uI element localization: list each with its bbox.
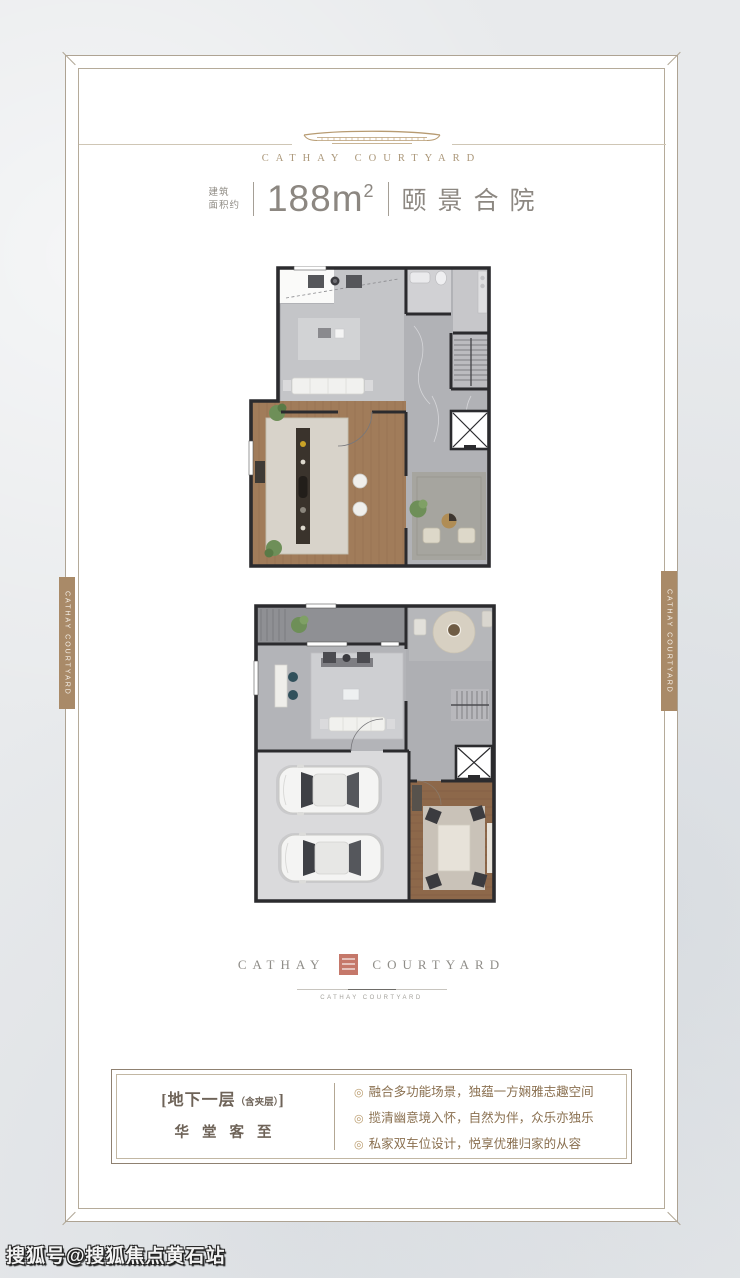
elevator-icon (456, 746, 492, 779)
side-table (320, 719, 328, 729)
poster-card: CATHAY COURTYARD 建筑 面积约 188m2 颐景合院 (65, 55, 678, 1222)
side-table (387, 719, 395, 729)
coffee-table (318, 328, 331, 338)
logo-divider (297, 989, 447, 990)
side-table (283, 380, 291, 391)
armchair (482, 611, 492, 627)
feature-bullet: ◎融合多功能场景，独蕴一方娴雅志趣空间 (354, 1080, 594, 1106)
side-ribbon-left: CATHAY COURTYARD (59, 577, 75, 709)
armchair (423, 528, 440, 543)
stairs (451, 689, 489, 721)
logo-word-right: COURTYARD (372, 957, 505, 973)
tea-table (266, 418, 348, 554)
teapot (299, 476, 308, 498)
speaker-round (343, 654, 351, 662)
logo-tagline: CATHAY COURTYARD (66, 995, 677, 1001)
side-ribbon-right: CATHAY COURTYARD (661, 571, 677, 711)
speaker (357, 652, 370, 663)
sofa (320, 717, 395, 731)
info-box: [地下一层（含夹层）] 华堂客至 ◎融合多功能场景，独蕴一方娴雅志趣空间 ◎揽清… (111, 1069, 632, 1164)
window (294, 266, 326, 270)
floor-subtitle: 华堂客至 (128, 1121, 331, 1142)
bathtub (410, 272, 430, 283)
frame-mitre (667, 52, 680, 65)
floorplan-lower (251, 601, 499, 903)
floorplan-upper (246, 266, 501, 571)
divider (334, 1083, 335, 1150)
stool (353, 474, 367, 488)
car-1 (276, 765, 382, 816)
roof-ornament-icon (292, 128, 452, 151)
cabinet (412, 785, 422, 811)
project-name: 颐景合院 (402, 181, 546, 217)
frame-mitre (62, 52, 75, 65)
area-value: 188m2 (267, 178, 375, 220)
ribbon-text: CATHAY COURTYARD (666, 589, 673, 694)
floor-title: [地下一层（含夹层）] (128, 1086, 318, 1110)
feature-bullet: ◎揽清幽意境入怀，自然为伴，众乐亦独乐 (354, 1106, 594, 1132)
armchair (414, 619, 426, 635)
frame-mitre (667, 1212, 680, 1225)
media-rug (298, 318, 360, 360)
bench (487, 823, 493, 873)
toilet (436, 271, 447, 285)
car-2 (278, 833, 384, 884)
sofa (283, 378, 373, 394)
bullet-icon: ◎ (354, 1139, 364, 1151)
speaker (323, 652, 336, 663)
feature-bullets: ◎融合多功能场景，独蕴一方娴雅志趣空间 ◎揽清幽意境入怀，自然为伴，众乐亦独乐 … (354, 1080, 594, 1158)
bullet-icon: ◎ (354, 1087, 364, 1099)
window (249, 441, 253, 475)
brand-wordmark: CATHAY COURTYARD (66, 153, 677, 164)
footer-logo: CATHAY COURTYARD CATHAY COURTYARD (66, 954, 677, 1001)
floor-title-block: [地下一层（含夹层）] 华堂客至 (128, 1086, 318, 1142)
cabinet (255, 461, 265, 483)
frame-mitre (62, 1212, 75, 1225)
divider (253, 182, 254, 216)
feature-bullet: ◎私家双车位设计，悦享优雅归家的从容 (354, 1132, 594, 1158)
speaker (308, 275, 324, 288)
dining-table (438, 825, 470, 871)
divider (388, 182, 389, 216)
speaker (346, 275, 362, 288)
round-table (448, 624, 461, 637)
coffee-table (343, 689, 359, 700)
area-label: 建筑 面积约 (208, 186, 240, 212)
side-table (365, 380, 373, 391)
stool (353, 502, 367, 516)
brand-seal-icon (339, 954, 358, 975)
ribbon-text: CATHAY COURTYARD (64, 591, 71, 696)
watermark: 搜狐号@搜狐焦点黄石站 (6, 1241, 226, 1268)
area-spec: 建筑 面积约 188m2 颐景合院 (66, 178, 677, 220)
page: { "header": { "brand": "CATHAY COURTYARD… (0, 0, 740, 1278)
logo-word-left: CATHAY (238, 957, 326, 973)
armchair (458, 528, 475, 543)
bullet-icon: ◎ (354, 1113, 364, 1125)
elevator-icon (451, 411, 489, 449)
